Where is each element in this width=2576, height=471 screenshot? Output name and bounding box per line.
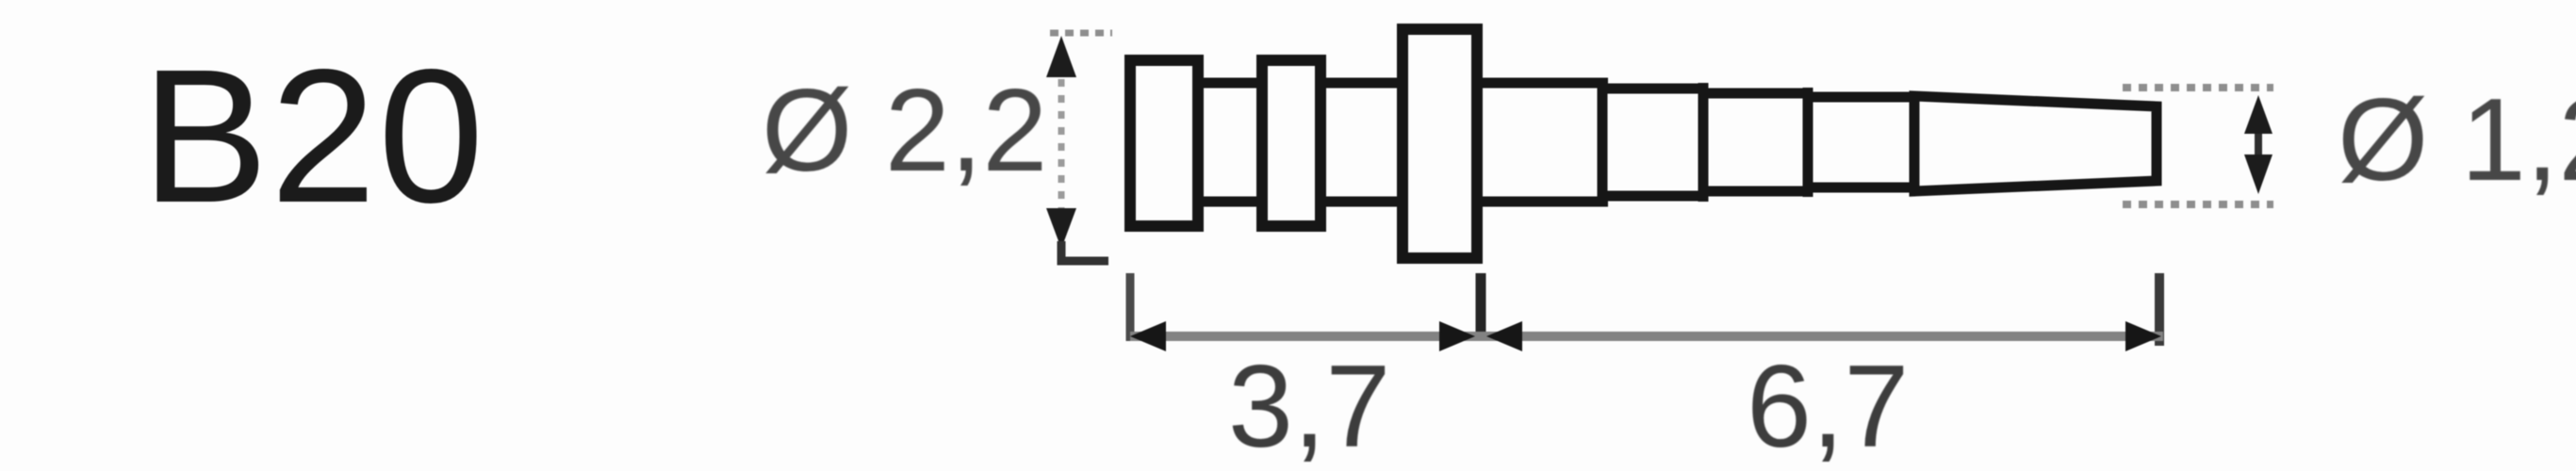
- part-code: B20: [141, 41, 485, 231]
- dimension-length-taper: 6,7: [1747, 349, 1909, 465]
- dim-lengths: [1130, 273, 2163, 351]
- dimension-length-shank: 3,7: [1228, 349, 1390, 465]
- dimension-diameter-main: Ø 2,2: [762, 73, 1047, 189]
- collar-rings: [1130, 29, 1477, 258]
- arrow-down-icon: [2244, 154, 2272, 194]
- technical-drawing-canvas: B20 Ø 2,2 Ø 1,2 3,7 6,7: [0, 0, 2576, 471]
- arrow-up-icon: [1046, 36, 1076, 77]
- arrow-left-icon: [1130, 321, 1166, 351]
- ring-2: [1262, 60, 1321, 226]
- dim-main-bottom-hook: [1061, 241, 1108, 261]
- ring-3: [1403, 29, 1477, 258]
- tip-cone: [1914, 96, 2157, 191]
- arrow-up-icon: [2244, 95, 2272, 134]
- dim-diameter-main: [1046, 33, 1112, 261]
- ring-1: [1130, 60, 1198, 226]
- arrow-left-icon: [1486, 321, 1522, 351]
- dimension-diameter-tip: Ø 1,2: [2338, 82, 2576, 199]
- arrow-right-icon: [1439, 321, 1475, 351]
